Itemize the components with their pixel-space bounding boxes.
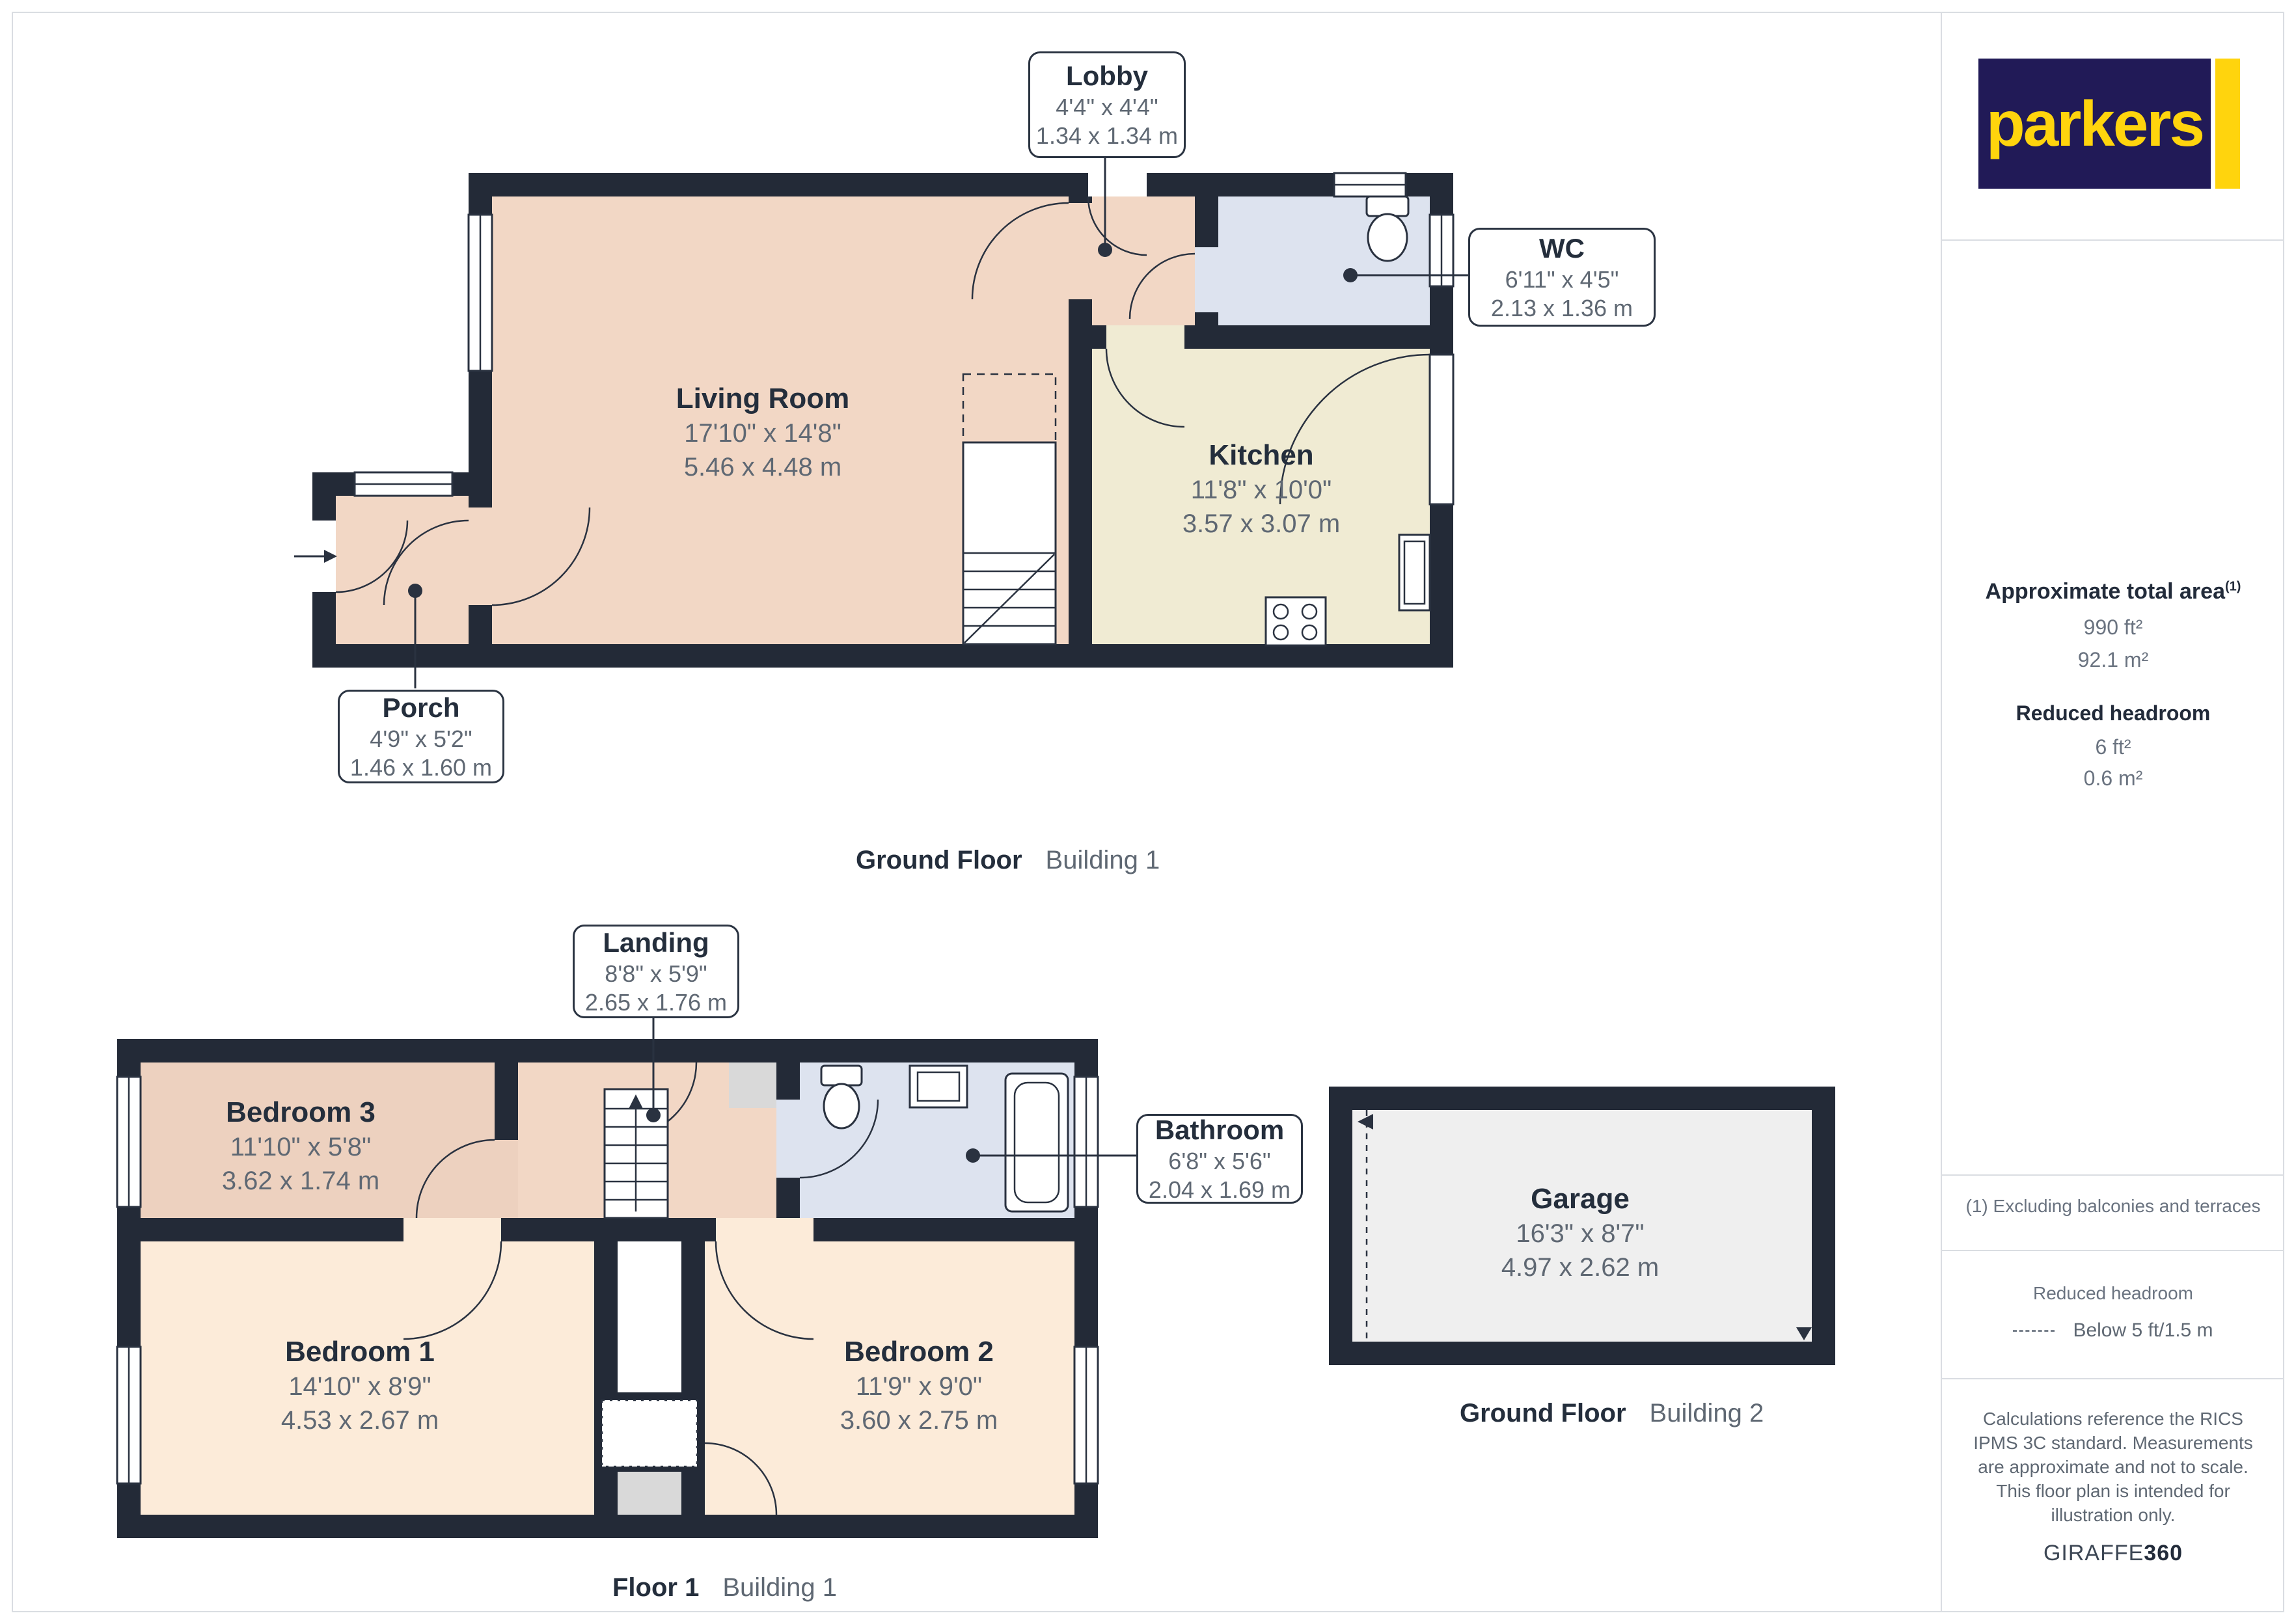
caption-floor1-b1: Floor 1 Building 1 xyxy=(612,1573,837,1603)
porch-floor xyxy=(336,496,469,644)
dotted-cupboard xyxy=(602,1400,697,1467)
stove-icon xyxy=(1266,597,1326,645)
bathroom-label-box: Bathroom 6'8" x 5'6" 2.04 x 1.69 m xyxy=(1136,1114,1303,1204)
total-area-imperial: 990 ft² xyxy=(1941,616,2286,640)
bathroom-toilet-icon xyxy=(821,1066,862,1085)
bedroom2-floor xyxy=(705,1241,1074,1515)
footnote: (1) Excluding balconies and terraces xyxy=(1941,1196,2286,1217)
lobby-floor xyxy=(1092,196,1195,325)
cupboard-gray-box xyxy=(618,1472,681,1515)
landing-gray-box xyxy=(729,1062,776,1108)
legend-title: Reduced headroom xyxy=(1941,1283,2286,1304)
parkers-logo: parkers xyxy=(1978,59,2211,189)
disclaimer-text: Calculations reference the RICS IPMS 3C … xyxy=(1959,1407,2267,1527)
bedroom3-floor xyxy=(141,1062,495,1218)
legend-row: Below 5 ft/1.5 m xyxy=(1941,1319,2286,1342)
reduced-headroom-imperial: 6 ft² xyxy=(1941,735,2286,759)
wc-label-box: WC 6'11" x 4'5" 2.13 x 1.36 m xyxy=(1468,228,1656,327)
caption-ground-floor-b2: Ground Floor Building 2 xyxy=(1460,1399,1764,1428)
giraffe360-logo: GIRAFFE360 xyxy=(1941,1541,2286,1566)
gf-room-floors xyxy=(336,196,1430,644)
kitchen-floor xyxy=(1092,349,1430,644)
sidebar-divider-disclaimer xyxy=(1942,1378,2283,1379)
stairwell-void xyxy=(618,1241,681,1392)
bedroom1-floor xyxy=(141,1241,594,1515)
porch-label-box: Porch 4'9" x 5'2" 1.46 x 1.60 m xyxy=(338,690,504,783)
reduced-headroom-title: Reduced headroom xyxy=(1941,701,2286,725)
legend-dash-sample xyxy=(2013,1330,2055,1332)
sidebar-divider-legend xyxy=(1942,1250,2283,1251)
garage-floor xyxy=(1352,1110,1812,1342)
caption-ground-floor-b1: Ground Floor Building 1 xyxy=(856,846,1160,875)
total-area-title: Approximate total area(1) xyxy=(1941,579,2286,604)
ground-floor-plan xyxy=(286,150,1477,690)
sidebar-divider-footnote xyxy=(1942,1174,2283,1176)
first-floor-plan xyxy=(98,1008,1152,1549)
total-area-metric: 92.1 m² xyxy=(1941,648,2286,672)
parkers-logo-accent-bar xyxy=(2215,59,2240,189)
reduced-headroom-metric: 0.6 m² xyxy=(1941,766,2286,791)
lobby-label-box: Lobby 4'4" x 4'4" 1.34 x 1.34 m xyxy=(1028,51,1186,158)
f1-stairs xyxy=(605,1089,668,1218)
legend-label: Below 5 ft/1.5 m xyxy=(2073,1319,2213,1342)
sidebar-divider xyxy=(1941,12,1942,1612)
landing-label-box: Landing 8'8" x 5'9" 2.65 x 1.76 m xyxy=(573,925,739,1018)
garage-plan xyxy=(1321,1080,1842,1373)
sidebar-divider-logo xyxy=(1942,239,2283,241)
